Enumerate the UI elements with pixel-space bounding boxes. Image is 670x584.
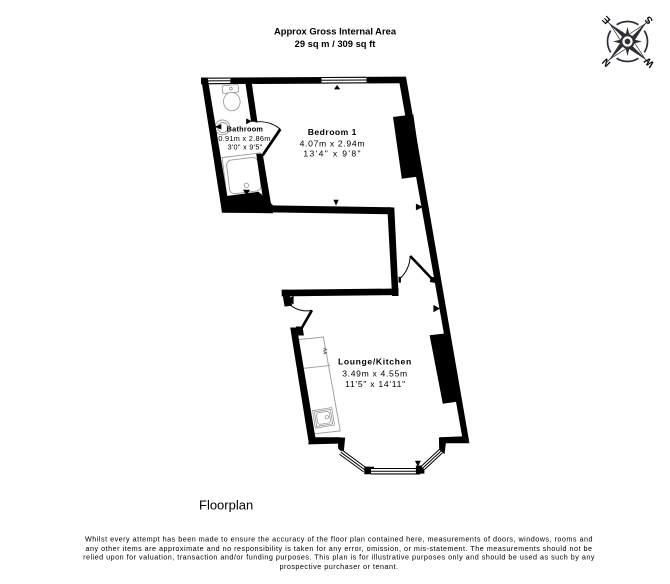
svg-text:11'5" x 14'11": 11'5" x 14'11" bbox=[345, 379, 406, 389]
svg-text:29 sq m / 309 sq ft: 29 sq m / 309 sq ft bbox=[295, 38, 376, 49]
svg-text:3.49m x 4.55m: 3.49m x 4.55m bbox=[342, 369, 408, 379]
svg-text:3'0" x 9'5": 3'0" x 9'5" bbox=[227, 143, 262, 152]
svg-text:Lounge/Kitchen: Lounge/Kitchen bbox=[338, 357, 412, 367]
svg-text:Approx Gross Internal Area: Approx Gross Internal Area bbox=[274, 26, 397, 37]
svg-text:Bedroom 1: Bedroom 1 bbox=[308, 127, 357, 137]
svg-text:prospective purchaser or tenan: prospective purchaser or tenant. bbox=[279, 562, 398, 571]
svg-text:Bathroom: Bathroom bbox=[227, 125, 264, 134]
svg-text:Floorplan: Floorplan bbox=[199, 498, 253, 513]
svg-text:Whilst every attempt has been: Whilst every attempt has been made to en… bbox=[85, 535, 593, 544]
svg-text:any other items are approximat: any other items are approximate and no r… bbox=[86, 544, 593, 553]
svg-text:4.07m x 2.94m: 4.07m x 2.94m bbox=[300, 138, 366, 148]
svg-text:13'4" x 9'8": 13'4" x 9'8" bbox=[303, 148, 362, 158]
svg-text:relied upon for valuation, tra: relied upon for valuation, transaction a… bbox=[83, 553, 595, 562]
